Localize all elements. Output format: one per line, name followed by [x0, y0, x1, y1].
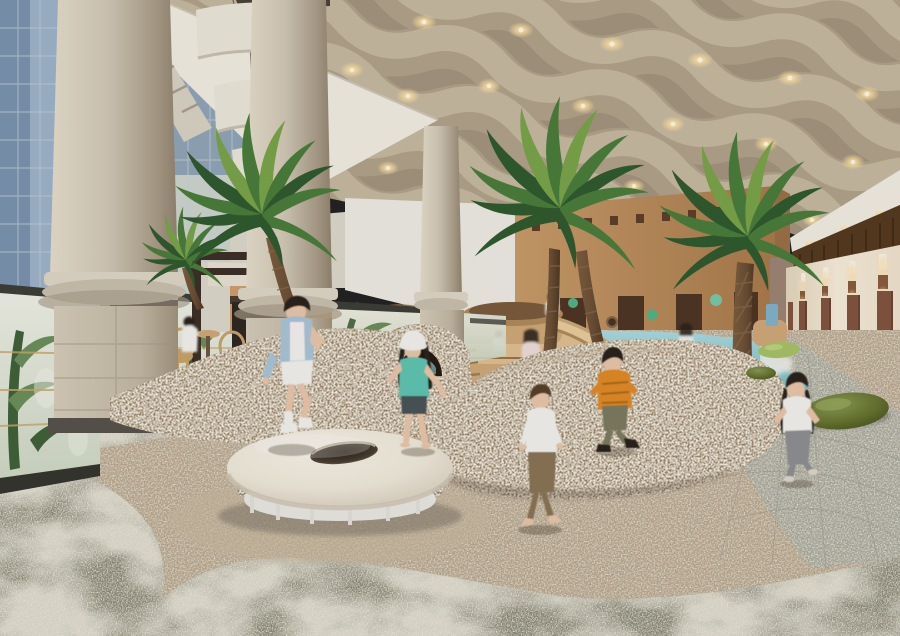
- vignette-overlay: [0, 0, 900, 636]
- playground-render: [0, 0, 900, 636]
